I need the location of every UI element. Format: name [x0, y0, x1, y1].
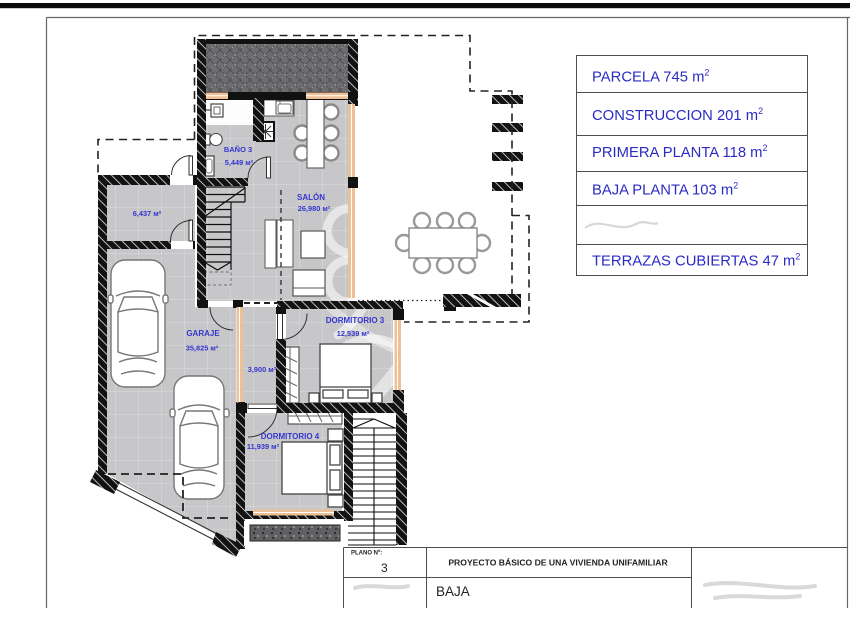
svg-text:TERRAZAS CUBIERTAS 47 m2: TERRAZAS CUBIERTAS 47 m2 — [592, 252, 800, 270]
svg-text:BAÑO 3: BAÑO 3 — [224, 145, 252, 154]
svg-text:DORMITORIO 4: DORMITORIO 4 — [261, 432, 320, 441]
svg-text:DORMITORIO 3: DORMITORIO 3 — [326, 316, 385, 325]
svg-text:26,980 м²: 26,980 м² — [298, 204, 331, 213]
svg-text:3: 3 — [381, 561, 388, 575]
svg-text:BAJA: BAJA — [436, 584, 470, 599]
svg-text:12,539 м²: 12,539 м² — [337, 329, 370, 338]
svg-text:35,825 м²: 35,825 м² — [186, 344, 219, 353]
svg-text:CONSTRUCCION 201 m2: CONSTRUCCION 201 m2 — [592, 106, 763, 124]
svg-text:PARCELA 745 m2: PARCELA 745 m2 — [592, 68, 709, 86]
svg-text:11,939 м²: 11,939 м² — [247, 442, 280, 451]
svg-text:5,449 м²: 5,449 м² — [225, 158, 254, 167]
svg-text:PLANO Nº:: PLANO Nº: — [351, 551, 382, 557]
svg-text:PROYECTO BÁSICO DE UNA VIVIEND: PROYECTO BÁSICO DE UNA VIVIENDA UNIFAMIL… — [448, 558, 668, 568]
svg-text:BAJA PLANTA 103 m2: BAJA PLANTA 103 m2 — [592, 181, 738, 199]
svg-text:PRIMERA PLANTA 118 m2: PRIMERA PLANTA 118 m2 — [592, 143, 768, 161]
svg-text:3,900 м²: 3,900 м² — [248, 365, 277, 374]
svg-text:SALÓN: SALÓN — [297, 193, 325, 202]
svg-text:GARAJE: GARAJE — [186, 329, 220, 338]
svg-text:6,437 м²: 6,437 м² — [133, 209, 162, 218]
